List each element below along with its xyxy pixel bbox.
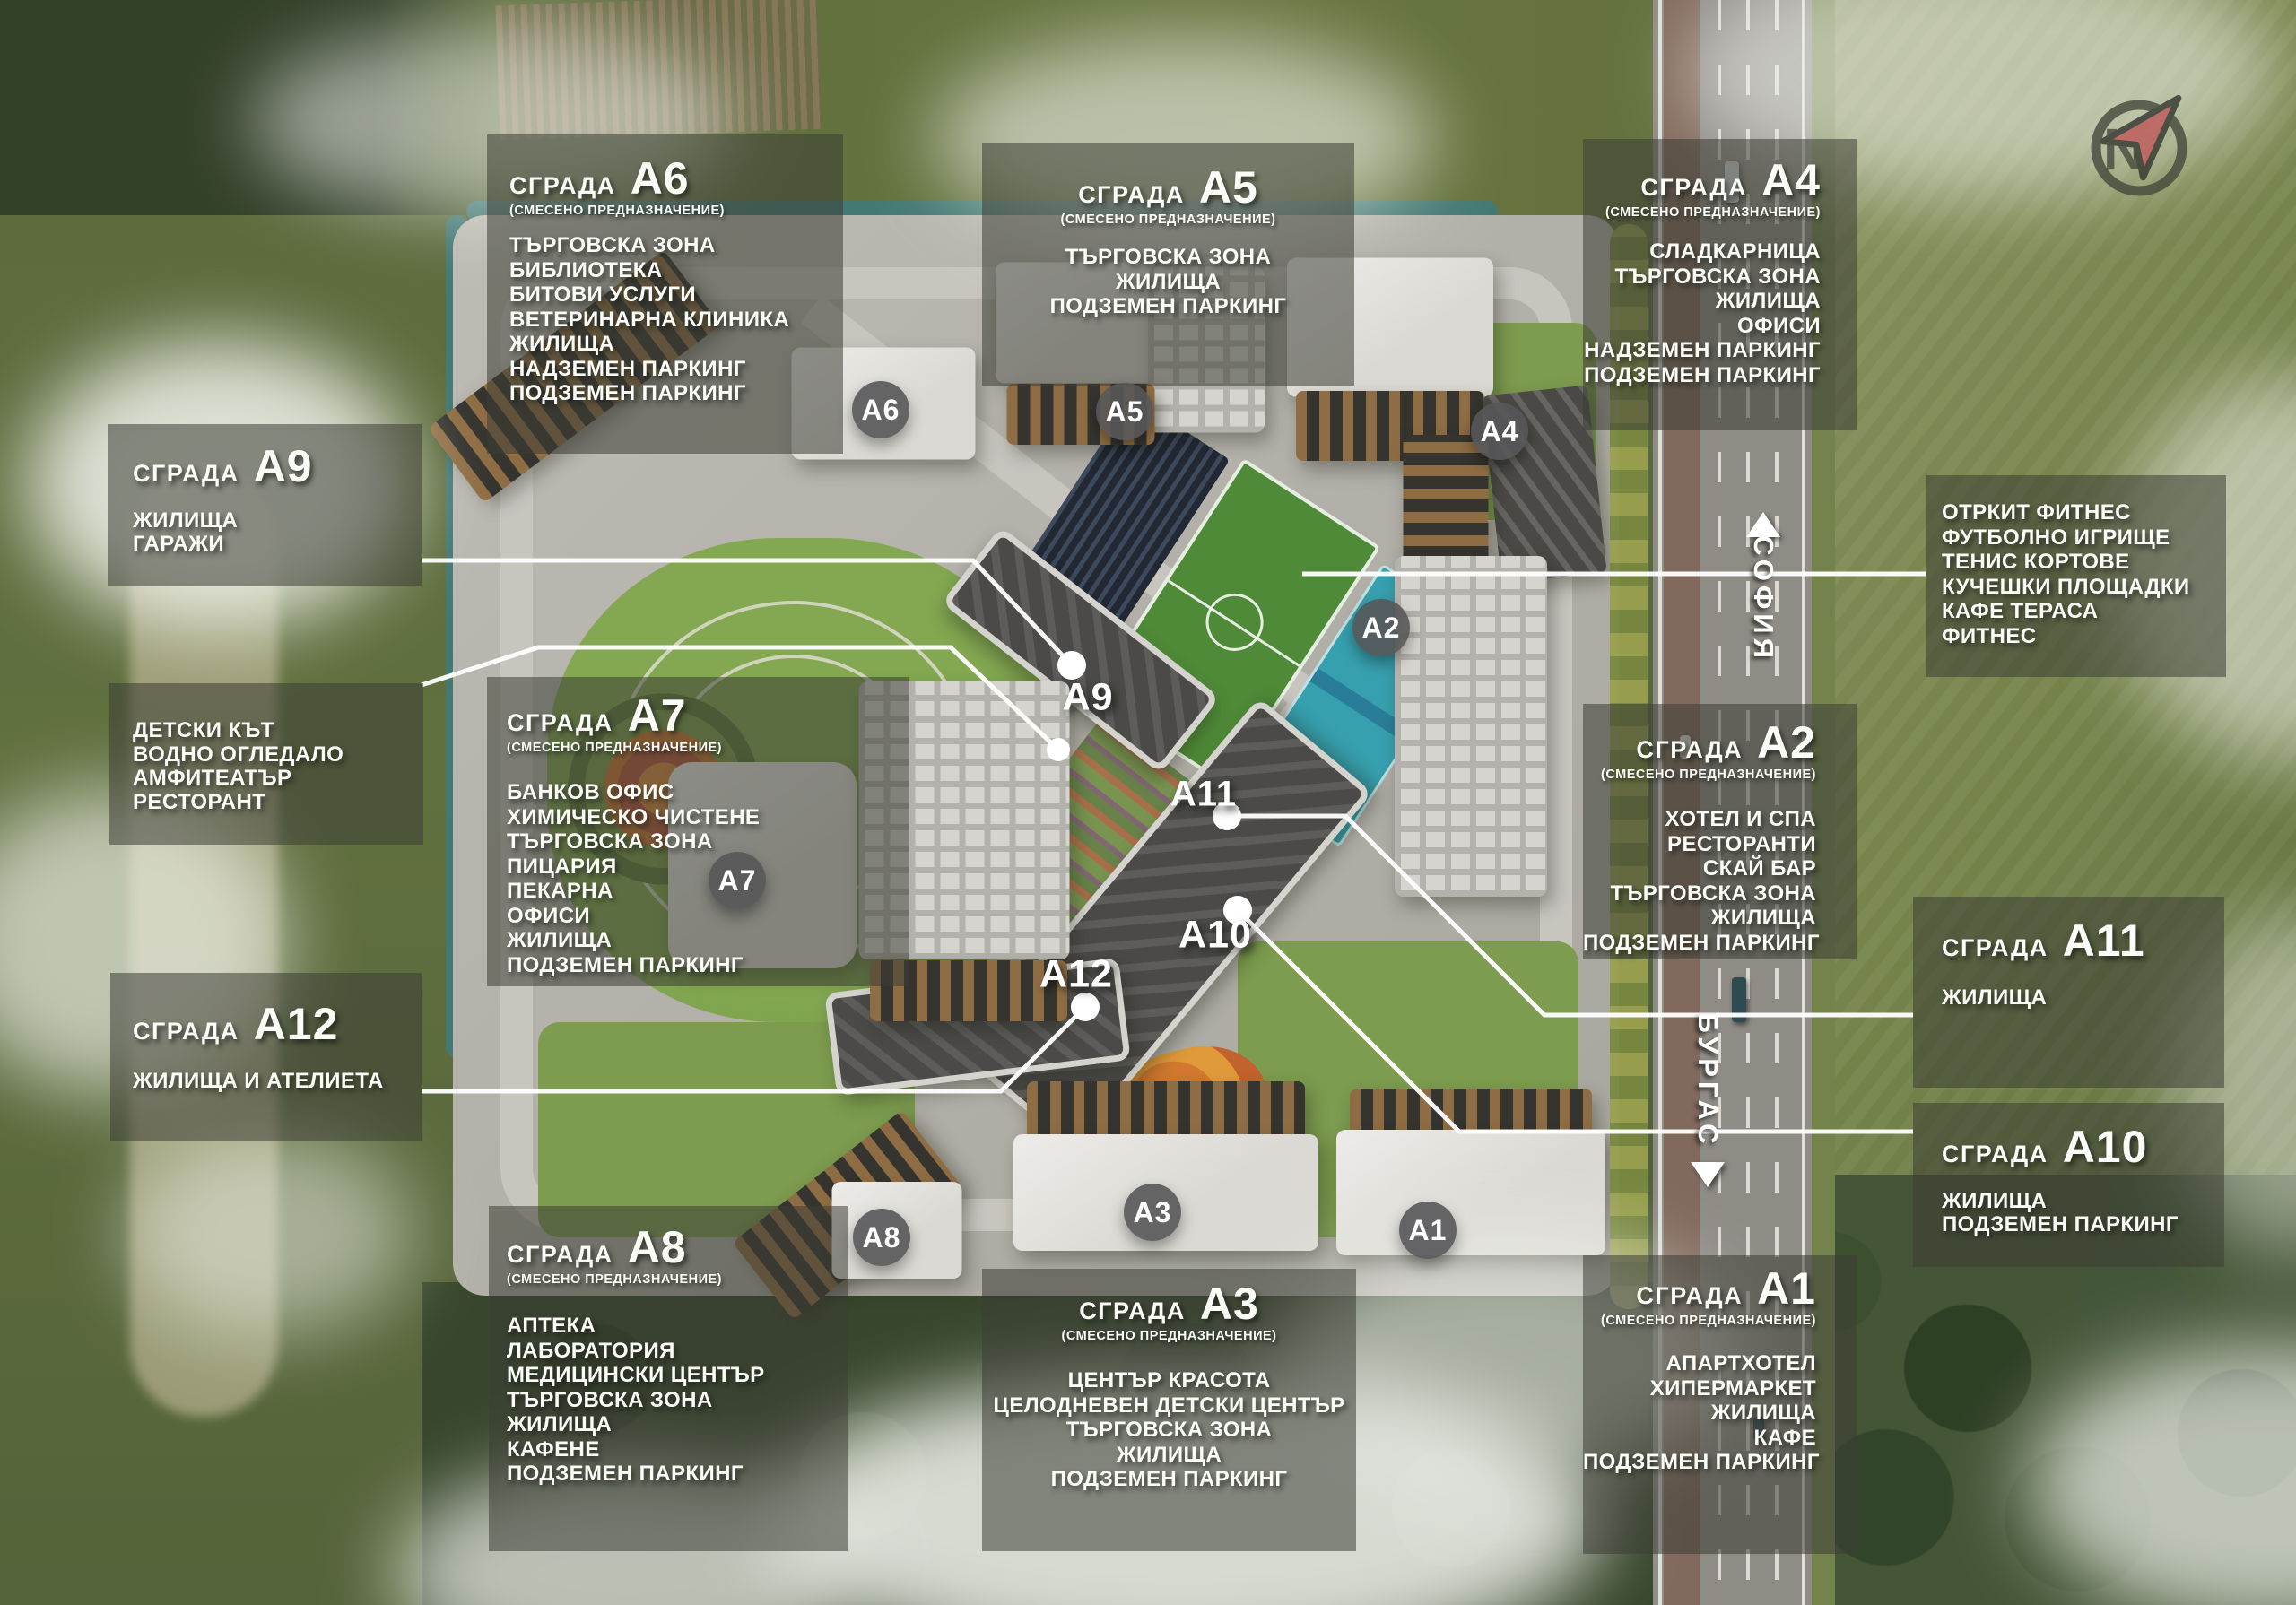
panel-item: АМФИТЕАТЪР [133,767,423,791]
panel-item: СЛАДКАРНИЦА [1583,239,1821,265]
panel-title-prefix: СГРАДА [509,172,616,200]
panel-title-code: А1 [1757,1270,1816,1308]
map-label-a10: А10 [1178,914,1252,958]
panel-amenities-list: БАНКОВ ОФИСХИМИЧЕСКО ЧИСТЕНЕТЪРГОВСКА ЗО… [507,780,909,977]
panel-item: ЦЕНТЪР КРАСОТА [982,1368,1356,1393]
panel-item: ВОДНО ОГЛЕДАЛО [133,743,423,768]
panel-item: ПИЦАРИЯ [507,855,909,880]
panel-title-prefix: СГРАДА [1636,736,1743,764]
panel-item: ТЕНИС КОРТОВЕ [1942,550,2226,575]
panel-item: ТЪРГОВСКА ЗОНА [982,1418,1356,1443]
panel-title-code: А2 [1757,724,1816,762]
panel-building-a2: СГРАДА А2 (СМЕСЕНО ПРЕДНАЗНАЧЕНИЕ) ХОТЕЛ… [1583,704,1857,959]
road-label-sofia: СОФИЯ [1747,535,1779,663]
panel-item: РЕСТОРАНТИ [1583,832,1816,857]
panel-title-prefix: СГРАДА [1636,1282,1743,1310]
map-badge-a1: А1 [1399,1202,1457,1259]
panel-item: ФИТНЕС [1942,624,2226,649]
panel-title-prefix: СГРАДА [133,1018,239,1045]
panel-item: РЕСТОРАНТ [133,791,423,815]
panel-title-code: А11 [2063,922,2145,960]
panel-title: СГРАДА А11 [1942,922,2224,962]
panel-item: ТЪРГОВСКА ЗОНА [509,233,834,258]
panel-amenities-list: ТЪРГОВСКА ЗОНАБИБЛИОТЕКАБИТОВИ УСЛУГИВЕТ… [509,233,834,406]
panel-item: БИБЛИОТЕКА [509,258,834,283]
panel-item: ЖИЛИЩА [507,928,909,953]
panel-item: АПАРТХОТЕЛ [1583,1351,1816,1376]
panel-subtitle: (СМЕСЕНО ПРЕДНАЗНАЧЕНИЕ) [1583,768,1816,782]
panel-subtitle: (СМЕСЕНО ПРЕДНАЗНАЧЕНИЕ) [509,204,834,218]
building-a2 [1395,556,1547,897]
map-badge-a4: А4 [1471,403,1528,460]
panel-item: БАНКОВ ОФИС [507,780,909,805]
panel-title: СГРАДА А8 [507,1228,848,1269]
building-a1-roof [1336,1130,1605,1255]
fog [126,1130,413,1336]
panel-item: БИТОВИ УСЛУГИ [509,282,834,308]
panel-amenities-list: ДЕТСКИ КЪТВОДНО ОГЛЕДАЛОАМФИТЕАТЪРРЕСТОР… [133,719,423,814]
panel-amenities-list: СЛАДКАРНИЦАТЪРГОВСКА ЗОНАЖИЛИЩАОФИСИНАДЗ… [1583,239,1821,387]
panel-item: ЖИЛИЩА [982,270,1354,295]
panel-item: ТЪРГОВСКА ЗОНА [507,1388,848,1413]
panel-item: ЖИЛИЩА И АТЕЛИЕТА [133,1069,422,1094]
panel-amenities-list: АПТЕКАЛАБОРАТОРИЯМЕДИЦИНСКИ ЦЕНТЪРТЪРГОВ… [507,1314,848,1487]
panel-title: СГРАДА А12 [133,1005,422,1045]
panel-building-a3: СГРАДА А3 (СМЕСЕНО ПРЕДНАЗНАЧЕНИЕ) ЦЕНТЪ… [982,1269,1356,1551]
panel-title-code: А5 [1199,169,1258,207]
map-badge-a8: А8 [853,1209,910,1266]
master-plan: N СГРАДА А6 (СМЕСЕНО ПРЕДНАЗНАЧЕНИЕ) ТЪР… [0,0,2296,1605]
panel-item: ТЪРГОВСКА ЗОНА [507,829,909,855]
panel-building-a11: СГРАДА А11 ЖИЛИЩА [1913,897,2224,1088]
panel-building-a4: СГРАДА А4 (СМЕСЕНО ПРЕДНАЗНАЧЕНИЕ) СЛАДК… [1583,139,1857,430]
panel-item: МЕДИЦИНСКИ ЦЕНТЪР [507,1363,848,1388]
road-label-burgas: БУРГАС [1692,1012,1724,1148]
panel-title-code: А7 [628,697,687,735]
map-label-a11: А11 [1170,775,1237,815]
map-badge-a7: А7 [709,852,766,909]
panel-item: АПТЕКА [507,1314,848,1339]
panel-item: КАФЕ [1583,1426,1816,1451]
panel-title-prefix: СГРАДА [133,460,239,488]
map-badge-a5: А5 [1096,383,1153,440]
panel-building-a1: СГРАДА А1 (СМЕСЕНО ПРЕДНАЗНАЧЕНИЕ) АПАРТ… [1583,1255,1857,1554]
panel-title-prefix: СГРАДА [507,1241,613,1269]
panel-item: ЖИЛИЩА [1583,1401,1816,1426]
map-label-a9: А9 [1063,676,1114,720]
panel-item: ПОДЗЕМЕН ПАРКИНГ [507,1462,848,1487]
panel-item: НАДЗЕМЕН ПАРКИНГ [1583,338,1821,363]
panel-building-a12: СГРАДА А12 ЖИЛИЩА И АТЕЛИЕТА [110,973,422,1141]
panel-item: ОФИСИ [507,904,909,929]
panel-item: ВЕТЕРИНАРНА КЛИНИКА [509,308,834,333]
panel-item: ХОТЕЛ И СПА [1583,807,1816,832]
panel-title: СГРАДА А3 [982,1285,1356,1325]
panel-item: СКАЙ БАР [1583,856,1816,881]
panel-subtitle: (СМЕСЕНО ПРЕДНАЗНАЧЕНИЕ) [1583,205,1821,220]
panel-title-code: А6 [631,160,690,198]
panel-item: ЖИЛИЩА [1942,1190,2224,1213]
map-badge-a2: А2 [1352,599,1410,656]
panel-title: СГРАДА А4 [1583,161,1821,202]
panel-amenities-list: ЖИЛИЩА И АТЕЛИЕТА [133,1069,422,1094]
panel-item: ХИМИЧЕСКО ЧИСТЕНЕ [507,805,909,830]
panel-item: ТЪРГОВСКА ЗОНА [1583,265,1821,290]
panel-title-code: А8 [628,1228,687,1267]
panel-item: ПОДЗЕМЕН ПАРКИНГ [1583,931,1816,956]
panel-item: ХИПЕРМАРКЕТ [1583,1376,1816,1401]
panel-title: СГРАДА А1 [1583,1270,1816,1310]
panel-amenities-list: ЖИЛИЩА [1942,985,2224,1011]
panel-building-a9: СГРАДА А9 ЖИЛИЩАГАРАЖИ [108,424,422,586]
panel-item: ПОДЗЕМЕН ПАРКИНГ [982,1467,1356,1492]
panel-amenities-list: ЖИЛИЩАГАРАЖИ [133,509,422,556]
panel-item: КУЧЕШКИ ПЛОЩАДКИ [1942,575,2226,600]
panel-building-a6: СГРАДА А6 (СМЕСЕНО ПРЕДНАЗНАЧЕНИЕ) ТЪРГО… [487,134,843,454]
panel-amenities-list: ОТРКИТ ФИТНЕСФУТБОЛНО ИГРИЩЕТЕНИС КОРТОВ… [1942,500,2226,648]
panel-title-code: А9 [254,447,313,486]
panel-amenities-list: ЦЕНТЪР КРАСОТАЦЕЛОДНЕВЕН ДЕТСКИ ЦЕНТЪРТЪ… [982,1368,1356,1492]
panel-park-amenities: ДЕТСКИ КЪТВОДНО ОГЛЕДАЛОАМФИТЕАТЪРРЕСТОР… [109,683,423,845]
panel-subtitle: (СМЕСЕНО ПРЕДНАЗНАЧЕНИЕ) [982,1329,1356,1343]
truck [1732,977,1746,1022]
panel-item: ТЪРГОВСКА ЗОНА [1583,881,1816,907]
map-label-a12: А12 [1039,953,1113,997]
panel-title-code: А4 [1761,161,1821,200]
panel-title-prefix: СГРАДА [1640,174,1747,202]
panel-building-a7: СГРАДА А7 (СМЕСЕНО ПРЕДНАЗНАЧЕНИЕ) БАНКО… [487,677,909,986]
panel-item: ЖИЛИЩА [1583,906,1816,931]
panel-title: СГРАДА А10 [1942,1128,2224,1168]
panel-item: ОФИСИ [1583,314,1821,339]
panel-item: ЛАБОРАТОРИЯ [507,1339,848,1364]
panel-title: СГРАДА А9 [133,447,422,488]
building-a4 [1404,435,1489,569]
panel-item: ПЕКАРНА [507,879,909,904]
panel-amenities-list: ТЪРГОВСКА ЗОНАЖИЛИЩАПОДЗЕМЕН ПАРКИНГ [982,245,1354,319]
panel-item: ЖИЛИЩА [133,509,422,533]
panel-title-prefix: СГРАДА [1079,1297,1186,1325]
arrow-up-icon [1746,512,1780,537]
panel-subtitle: (СМЕСЕНО ПРЕДНАЗНАЧЕНИЕ) [982,213,1354,227]
panel-item: ПОДЗЕМЕН ПАРКИНГ [1583,1450,1816,1475]
panel-item: ЖИЛИЩА [1583,289,1821,314]
panel-title: СГРАДА А7 [507,697,909,737]
panel-title-prefix: СГРАДА [1942,934,2048,962]
panel-item: ЖИЛИЩА [509,332,834,357]
arrow-down-icon [1691,1162,1725,1187]
panel-building-a10: СГРАДА А10 ЖИЛИЩАПОДЗЕМЕН ПАРКИНГ [1913,1103,2224,1267]
panel-item: ЖИЛИЩА [1942,985,2224,1011]
panel-title: СГРАДА А2 [1583,724,1816,764]
panel-item: ЦЕЛОДНЕВЕН ДЕТСКИ ЦЕНТЪР [982,1393,1356,1418]
panel-item: ЖИЛИЩА [982,1443,1356,1468]
panel-item: КАФЕ ТЕРАСА [1942,599,2226,624]
panel-subtitle: (СМЕСЕНО ПРЕДНАЗНАЧЕНИЕ) [507,741,909,755]
panel-building-a8: СГРАДА А8 (СМЕСЕНО ПРЕДНАЗНАЧЕНИЕ) АПТЕК… [489,1206,848,1551]
panel-sport-amenities: ОТРКИТ ФИТНЕСФУТБОЛНО ИГРИЩЕТЕНИС КОРТОВ… [1926,475,2226,677]
panel-item: ТЪРГОВСКА ЗОНА [982,245,1354,270]
panel-item: ПОДЗЕМЕН ПАРКИНГ [509,381,834,406]
map-badge-a6: А6 [852,381,909,438]
panel-item: ГАРАЖИ [133,533,422,556]
panel-title-prefix: СГРАДА [507,709,613,737]
pitch-center-circle [1195,583,1274,663]
panel-title-code: А12 [254,1005,339,1044]
panel-title-code: А3 [1200,1285,1259,1323]
map-badge-a3: А3 [1124,1184,1181,1241]
panel-title: СГРАДА А6 [509,160,834,200]
panel-item: ПОДЗЕМЕН ПАРКИНГ [1583,363,1821,388]
panel-item: ОТРКИТ ФИТНЕС [1942,500,2226,525]
panel-subtitle: (СМЕСЕНО ПРЕДНАЗНАЧЕНИЕ) [507,1272,848,1287]
panel-amenities-list: ЖИЛИЩАПОДЗЕМЕН ПАРКИНГ [1942,1190,2224,1236]
panel-amenities-list: АПАРТХОТЕЛХИПЕРМАРКЕТЖИЛИЩАКАФЕПОДЗЕМЕН … [1583,1351,1816,1475]
panel-item: ФУТБОЛНО ИГРИЩЕ [1942,525,2226,551]
panel-item: ДЕТСКИ КЪТ [133,719,423,743]
panel-title-code: А10 [2063,1128,2148,1167]
panel-subtitle: (СМЕСЕНО ПРЕДНАЗНАЧЕНИЕ) [1583,1314,1816,1328]
panel-item: ПОДЗЕМЕН ПАРКИНГ [507,953,909,978]
panel-item: КАФЕНЕ [507,1437,848,1462]
panel-title: СГРАДА А5 [982,169,1354,209]
panel-item: ПОДЗЕМЕН ПАРКИНГ [982,294,1354,319]
panel-item: НАДЗЕМЕН ПАРКИНГ [509,357,834,382]
panel-item: ПОДЗЕМЕН ПАРКИНГ [1942,1213,2224,1236]
panel-building-a5: СГРАДА А5 (СМЕСЕНО ПРЕДНАЗНАЧЕНИЕ) ТЪРГО… [982,143,1354,386]
panel-title-prefix: СГРАДА [1942,1141,2048,1168]
panel-item: ЖИЛИЩА [507,1412,848,1437]
panel-amenities-list: ХОТЕЛ И СПАРЕСТОРАНТИСКАЙ БАРТЪРГОВСКА З… [1583,807,1816,955]
panel-title-prefix: СГРАДА [1078,181,1185,209]
